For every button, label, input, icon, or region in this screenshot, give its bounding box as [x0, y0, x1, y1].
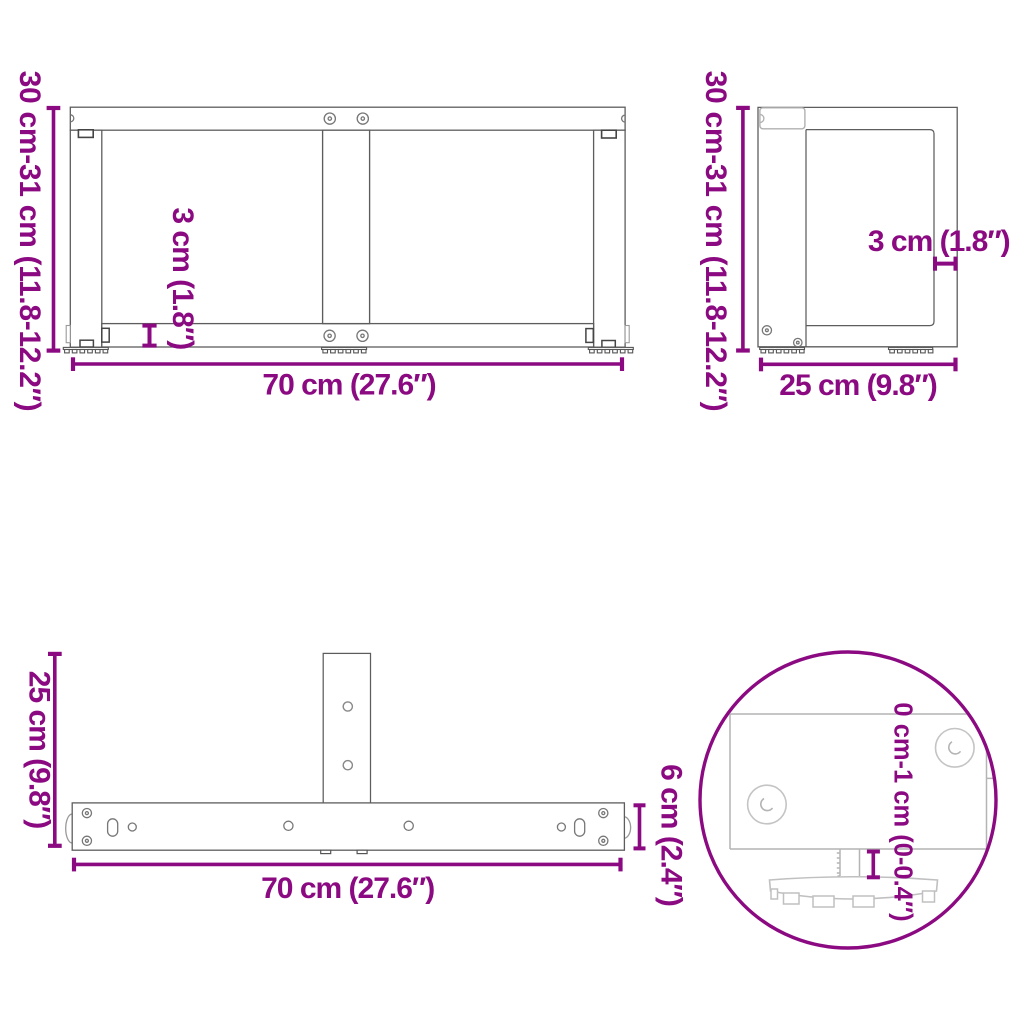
svg-text:3 cm (1.8″): 3 cm (1.8″): [868, 225, 1010, 258]
svg-text:30 cm-31 cm (11.8-12.2″): 30 cm-31 cm (11.8-12.2″): [13, 71, 46, 412]
svg-text:25 cm (9.8″): 25 cm (9.8″): [779, 369, 936, 402]
svg-text:70 cm (27.6″): 70 cm (27.6″): [262, 368, 435, 401]
svg-text:30 cm-31 cm (11.8-12.2″): 30 cm-31 cm (11.8-12.2″): [699, 71, 732, 412]
svg-text:0 cm-1 cm (0-0.4″): 0 cm-1 cm (0-0.4″): [889, 702, 917, 921]
svg-text:25 cm (9.8″): 25 cm (9.8″): [22, 671, 55, 828]
svg-text:6 cm (2.4″): 6 cm (2.4″): [655, 764, 688, 906]
svg-text:3 cm (1.8″): 3 cm (1.8″): [166, 207, 199, 349]
svg-text:70 cm (27.6″): 70 cm (27.6″): [261, 872, 434, 905]
